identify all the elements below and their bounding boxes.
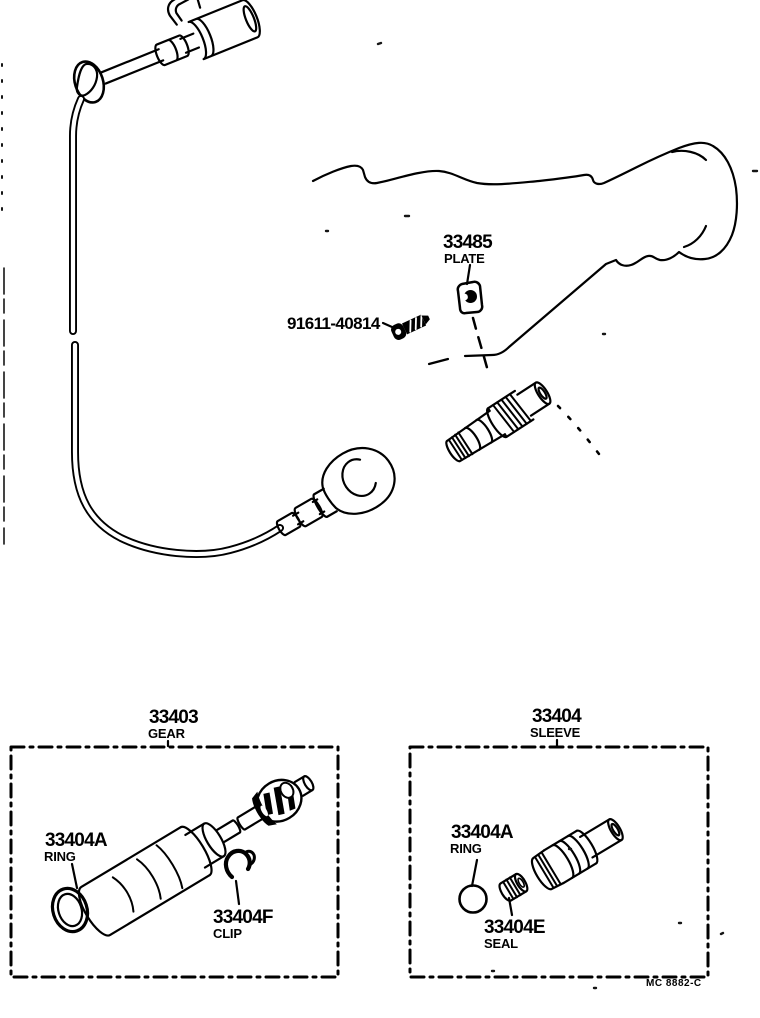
callout-sleeve-ring-name: RING	[450, 842, 482, 855]
callout-sleeve-seal-name: SEAL	[484, 937, 518, 950]
diagram-artwork	[0, 0, 760, 1018]
callout-gear-clip-number: 33404F	[213, 908, 273, 927]
footer-drawing-code: MC 8882-C	[646, 979, 702, 989]
cable-run	[73, 99, 280, 554]
callout-sleeve-box-number: 33404	[532, 707, 581, 726]
callout-gear-box-name: GEAR	[148, 727, 185, 740]
toyota-parts-diagram-page: 33485 PLATE 91611-40814 33403 GEAR 33404…	[0, 0, 760, 1018]
cable-clip-icon	[164, 0, 204, 26]
gear-oring-drawing	[47, 864, 93, 936]
scan-artifacts	[2, 43, 757, 988]
gear-clip-leader-line	[236, 881, 239, 904]
driven-gear-assembly-drawing	[441, 376, 599, 467]
callout-sleeve-ring-number: 33404A	[451, 823, 513, 842]
callout-gear-clip-name: CLIP	[213, 927, 242, 940]
sleeve-drawing	[528, 811, 629, 893]
sleeve-kit-box	[410, 747, 708, 977]
gear-clip-drawing	[226, 851, 254, 904]
callout-gear-box-number: 33403	[149, 708, 198, 727]
plate-leader-line	[467, 265, 470, 284]
screw-part-drawing	[383, 310, 432, 341]
sleeve-seal-drawing	[497, 872, 530, 915]
callout-plate-number: 33485	[443, 233, 492, 252]
plate-part-drawing	[458, 265, 489, 375]
callout-gear-ring-name: RING	[44, 850, 76, 863]
callout-sleeve-box-name: SLEEVE	[530, 726, 580, 739]
callout-plate-name: PLATE	[444, 252, 485, 265]
cable-lower-connector	[262, 435, 406, 554]
cable-grommet	[69, 58, 109, 107]
gear-ring-leader-line	[72, 864, 77, 888]
gear-shaft-drawing	[73, 757, 326, 940]
screw-leader-line	[383, 323, 392, 327]
cable-upper-connector	[69, 0, 264, 106]
gear-axis-dashed-line	[558, 406, 599, 454]
callout-screw-number: 91611-40814	[287, 315, 380, 332]
sleeve-ring-leader-line	[472, 860, 477, 886]
callout-gear-ring-number: 33404A	[45, 831, 107, 850]
plate-install-dashed-line	[473, 318, 489, 375]
sleeve-oring-drawing	[460, 860, 487, 913]
callout-sleeve-seal-number: 33404E	[484, 918, 545, 937]
